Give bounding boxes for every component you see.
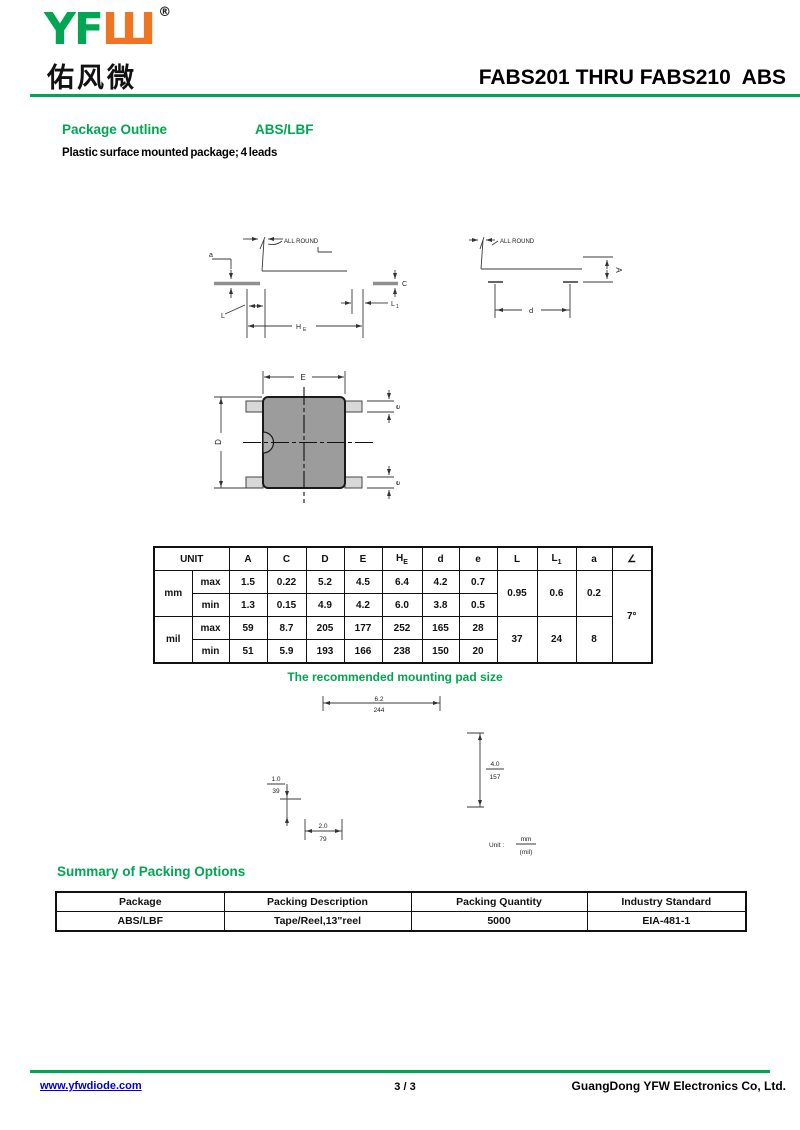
pad-h-mm: 1.0 — [271, 776, 280, 783]
unit-mil: (mil) — [520, 849, 533, 856]
dim-L-label: L — [221, 313, 225, 320]
datasheet-page: YFШ® 佑风微 FABS201 THRU FABS210 ABS Packag… — [0, 0, 800, 1130]
col-L1-sub: 1 — [558, 559, 562, 566]
col-D: D — [306, 547, 344, 571]
dim-e-bottom-label: e — [393, 481, 402, 485]
registered-trademark-icon: ® — [158, 5, 171, 20]
pad-height-mil: 157 — [490, 774, 501, 781]
dim-HE-label: H — [296, 324, 301, 331]
header-divider — [30, 94, 800, 97]
cell-mm-a: 0.2 — [576, 571, 612, 617]
cell: 166 — [344, 640, 382, 664]
top-view-drawing: E D e e — [205, 363, 415, 515]
cell: 4.9 — [306, 594, 344, 617]
logo-yf-text: YF — [44, 4, 102, 55]
lead-bottom-right — [345, 477, 362, 488]
footer-divider — [30, 1070, 770, 1073]
dim-D-label: D — [214, 439, 223, 445]
section-heading-package-outline: Package Outline — [62, 122, 167, 137]
side-view-drawing-right: ALL ROUND A d — [465, 226, 640, 344]
pad-height-mm: 4.0 — [490, 761, 499, 768]
cell: 0.5 — [459, 594, 497, 617]
company-name: GuangDong YFW Electronics Co, Ltd. — [572, 1079, 786, 1093]
cell-mm-L1: 0.6 — [537, 571, 576, 617]
cell: 0.15 — [267, 594, 306, 617]
cell: 238 — [382, 640, 422, 664]
cell: 0.7 — [459, 571, 497, 594]
cell: 252 — [382, 617, 422, 640]
website-link[interactable]: www.yfwdiode.com — [40, 1080, 142, 1092]
col-angle: ∠ — [612, 547, 652, 571]
lead-top-right — [345, 401, 362, 412]
table-header-row: UNIT A C D E HE d e L L1 a ∠ — [154, 547, 652, 571]
packing-col-standard: Industry Standard — [587, 892, 746, 912]
table-row-mil-max: mil max 59 8.7 205 177 252 165 28 37 24 … — [154, 617, 652, 640]
cell: 6.0 — [382, 594, 422, 617]
cell: 205 — [306, 617, 344, 640]
min-label: min — [192, 594, 229, 617]
col-L1: L1 — [537, 547, 576, 571]
packing-header-row: Package Packing Description Packing Quan… — [56, 892, 746, 912]
cell-mil-L: 37 — [497, 617, 537, 664]
dim-HE-subscript: E — [303, 327, 307, 333]
cell: 4.2 — [422, 571, 459, 594]
dim-e-top-label: e — [393, 405, 402, 409]
cell: 165 — [422, 617, 459, 640]
cell-mm-L: 0.95 — [497, 571, 537, 617]
all-round-label: ALL ROUND — [284, 239, 319, 245]
unit-mm: mm — [154, 571, 192, 617]
cell-mil-L1: 24 — [537, 617, 576, 664]
package-subtitle: Plastic surface mounted package; 4 leads — [62, 147, 277, 159]
cell: 150 — [422, 640, 459, 664]
col-HE: HE — [382, 547, 422, 571]
cell: 1.5 — [229, 571, 267, 594]
lead-bottom-left — [246, 477, 263, 488]
dim-a-label: a — [209, 252, 213, 259]
cell-angle: 7° — [612, 571, 652, 664]
col-d: d — [422, 547, 459, 571]
col-C: C — [267, 547, 306, 571]
max-label: max — [192, 571, 229, 594]
unit-mm: mm — [521, 836, 532, 843]
pad-h-mil: 39 — [272, 788, 280, 795]
pad-w-mm: 2.0 — [318, 823, 327, 830]
packing-col-package: Package — [56, 892, 224, 912]
logo-chinese-name: 佑风微 — [47, 56, 137, 95]
dim-L1-label: L — [391, 301, 395, 308]
packing-heading: Summary of Packing Options — [57, 864, 245, 879]
col-e: e — [459, 547, 497, 571]
cell: 1.3 — [229, 594, 267, 617]
cell: 8.7 — [267, 617, 306, 640]
cell: 3.8 — [422, 594, 459, 617]
max-label: max — [192, 617, 229, 640]
cell: 177 — [344, 617, 382, 640]
dimension-lines — [469, 237, 613, 318]
packing-quantity: 5000 — [411, 912, 587, 932]
dimension-lines — [267, 696, 536, 844]
company-logo: YFШ® — [44, 6, 171, 52]
col-E: E — [344, 547, 382, 571]
unit-label: Unit : — [489, 842, 504, 849]
package-dimension-table: UNIT A C D E HE d e L L1 a ∠ mm max 1.5 … — [153, 546, 653, 664]
page-number: 3 / 3 — [350, 1081, 460, 1093]
packing-package: ABS/LBF — [56, 912, 224, 932]
pad-width-mil: 244 — [374, 707, 385, 714]
min-label: min — [192, 640, 229, 664]
cell: 5.2 — [306, 571, 344, 594]
col-A: A — [229, 547, 267, 571]
packing-col-description: Packing Description — [224, 892, 411, 912]
cell: 193 — [306, 640, 344, 664]
cell: 4.5 — [344, 571, 382, 594]
col-L: L — [497, 547, 537, 571]
package-name: ABS/LBF — [255, 122, 314, 137]
cell: 59 — [229, 617, 267, 640]
side-view-drawing-left: ALL ROUND a L H E L 1 C — [195, 226, 415, 344]
cell: 5.9 — [267, 640, 306, 664]
mounting-pad-heading: The recommended mounting pad size — [230, 670, 560, 684]
dim-C-label: C — [402, 281, 407, 288]
packing-description: Tape/Reel,13"reel — [224, 912, 411, 932]
logo-w-glyph: Ш — [102, 4, 156, 55]
cell: 28 — [459, 617, 497, 640]
dimension-lines — [212, 237, 395, 338]
packing-col-quantity: Packing Quantity — [411, 892, 587, 912]
pad-w-mil: 79 — [319, 836, 327, 843]
page-title: FABS201 THRU FABS210 ABS — [479, 66, 786, 90]
dim-d-label: d — [529, 306, 533, 315]
table-row-mm-max: mm max 1.5 0.22 5.2 4.5 6.4 4.2 0.7 0.95… — [154, 571, 652, 594]
mounting-pad-drawing: 6.2 244 4.0 157 1.0 39 2.0 79 Unit : mm … — [255, 688, 545, 860]
unit-header: UNIT — [154, 547, 229, 571]
dim-A-label: A — [614, 267, 623, 273]
packing-data-row: ABS/LBF Tape/Reel,13"reel 5000 EIA-481-1 — [56, 912, 746, 932]
unit-mil: mil — [154, 617, 192, 664]
cell: 6.4 — [382, 571, 422, 594]
cell: 51 — [229, 640, 267, 664]
all-round-label: ALL ROUND — [500, 239, 535, 245]
cell-mil-a: 8 — [576, 617, 612, 664]
pad-width-mm: 6.2 — [374, 696, 383, 703]
col-HE-sub: E — [403, 559, 408, 566]
cell: 0.22 — [267, 571, 306, 594]
col-a: a — [576, 547, 612, 571]
cell: 4.2 — [344, 594, 382, 617]
packing-standard: EIA-481-1 — [587, 912, 746, 932]
cell: 20 — [459, 640, 497, 664]
dim-L1-subscript: 1 — [396, 304, 399, 310]
lead-top-left — [246, 401, 263, 412]
dim-E-label: E — [300, 373, 305, 382]
packing-options-table: Package Packing Description Packing Quan… — [55, 891, 747, 932]
